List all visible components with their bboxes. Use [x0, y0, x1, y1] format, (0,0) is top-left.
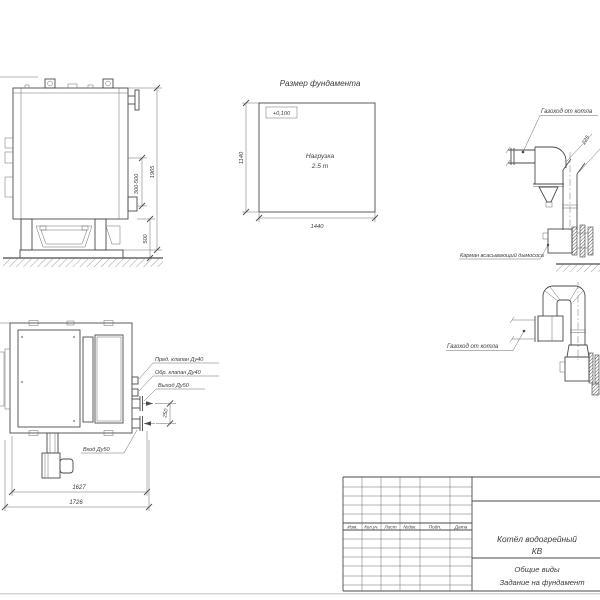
dimension-nozzle-spacing: 250	[155, 401, 176, 427]
title-block: Изм. Кол.уч. Лист №док. Подп. Дата Котёл…	[343, 477, 600, 591]
dim-plan-inner-label: 1627	[72, 485, 86, 491]
boiler-side-view: 300-500 1965 500	[0, 77, 163, 267]
dimension-flue-range: 300-500	[128, 155, 147, 209]
label-outlet: Выход Ду50	[158, 383, 190, 389]
titleblock-col-koluch: Кол.уч.	[364, 525, 378, 530]
foundation-title: Размер фундамента	[280, 79, 361, 88]
drawing-canvas: 300-500 1965 500 Размер фундамента +0,10…	[0, 0, 600, 600]
dim-foundation-width-label: 1440	[311, 224, 325, 230]
titleblock-col-data: Дата	[454, 525, 468, 531]
dim-nozzle-spacing-label: 250	[162, 408, 170, 419]
titleblock-product-line2: КВ	[532, 546, 543, 556]
label-inlet: Вход Ду50	[83, 447, 111, 453]
drawing-sheet: 300-500 1965 500 Размер фундамента +0,10…	[0, 0, 600, 600]
foundation-plan: Размер фундамента +0,100 Нагрузка 2.5 т …	[239, 79, 378, 230]
dimension-plan-outer: 1726	[2, 440, 152, 511]
dimension-duct-225: 225	[567, 134, 600, 172]
titleblock-col-list: Лист	[383, 525, 396, 531]
dim-overall-height-label: 1965	[150, 165, 156, 178]
load-label-line1: Нагрузка	[306, 153, 335, 160]
dim-foundation-depth-label: 1140	[239, 151, 245, 164]
dim-base-height-label: 500	[143, 233, 149, 243]
titleblock-col-izm: Изм.	[347, 525, 357, 531]
load-label-line2: 2.5 т	[311, 163, 329, 170]
elevation-value: +0,100	[273, 111, 291, 117]
dim-flue-range-label: 300-500	[134, 173, 140, 194]
suction-pocket-box	[543, 225, 593, 257]
ground-hatch	[3, 258, 163, 267]
dimension-foundation-depth: 1140	[239, 100, 259, 215]
flue2-duct-label: Газоход от котла	[447, 344, 499, 350]
top-flange-nozzle	[128, 90, 139, 110]
boiler-plan-view: Пред. клапан Ду40 Обр. клапан Ду40 Выход…	[0, 321, 219, 512]
valve-stub-check	[132, 389, 138, 396]
flue-diagram-top: Газоход от котла 225	[459, 109, 600, 272]
label-safety-valve: Пред. клапан Ду40	[155, 357, 204, 363]
titleblock-doc-line2: Задание на фундамент	[499, 578, 584, 587]
lifting-lug-icon	[45, 79, 113, 88]
dimension-overall-height: 1965	[123, 85, 162, 253]
support-frame	[20, 219, 123, 258]
fan-inlet-box	[560, 353, 599, 395]
elevation-mark: +0,100	[266, 107, 297, 118]
flue-diagram-side: Газоход от котла	[446, 282, 599, 395]
valve-stub-safety	[132, 377, 138, 384]
titleblock-col-podp: Подп.	[429, 525, 442, 531]
label-check-valve: Обр. клапан Ду40	[155, 370, 202, 376]
cyclone-pocket	[533, 147, 566, 207]
titleblock-product-line1: Котёл водогрейный	[497, 534, 577, 544]
titleblock-doc-line1: Общие виды	[514, 565, 560, 574]
outlet-nozzle	[132, 396, 153, 411]
ground-hatch-flue1	[556, 264, 600, 272]
dimension-base-height: 500	[137, 216, 155, 261]
flue1-duct-label: Газоход от котла	[541, 109, 593, 115]
dimension-foundation-width: 1440	[256, 212, 378, 230]
dimension-plan-inner: 1627	[9, 431, 150, 496]
burner	[42, 433, 73, 478]
titleblock-col-ndok: №док.	[403, 525, 417, 530]
sheet-edge-line	[0, 593, 600, 594]
inlet-nozzle	[132, 416, 155, 431]
dim-plan-outer-label: 1726	[69, 500, 83, 506]
flue1-pocket-label: Карман всасывающий дымососа	[460, 252, 544, 259]
